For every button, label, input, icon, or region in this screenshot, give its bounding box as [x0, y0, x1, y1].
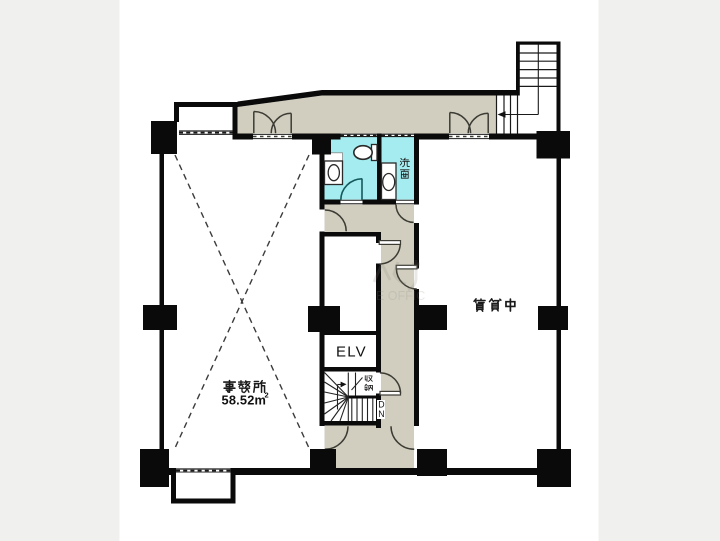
- svg-text:N: N: [378, 409, 384, 419]
- svg-text:D: D: [378, 400, 384, 410]
- svg-text:ELV: ELV: [336, 344, 367, 361]
- svg-text:E OFFIC: E OFFIC: [376, 289, 425, 303]
- svg-text:58.52m: 58.52m: [222, 393, 267, 408]
- svg-text:2: 2: [265, 391, 269, 400]
